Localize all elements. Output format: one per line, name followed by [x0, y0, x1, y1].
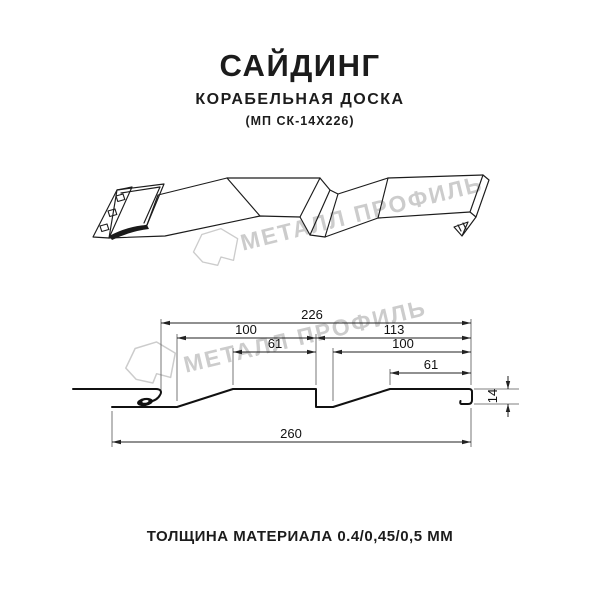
- profile-outline: [112, 389, 472, 407]
- dim-label-226: 226: [301, 307, 323, 322]
- material-thickness-note: ТОЛЩИНА МАТЕРИАЛА 0.4/0,45/0,5 ММ: [0, 528, 600, 545]
- page-subtitle: КОРАБЕЛЬНАЯ ДОСКА: [0, 91, 600, 109]
- page: САЙДИНГ КОРАБЕЛЬНАЯ ДОСКА (МП СК-14Х226)…: [0, 0, 600, 600]
- end-fold: [470, 175, 489, 217]
- dim-label-14: 14: [485, 389, 500, 403]
- header: САЙДИНГ КОРАБЕЛЬНАЯ ДОСКА (МП СК-14Х226): [0, 48, 600, 128]
- panel-3d-drawing: [55, 165, 495, 265]
- dim-label-61-left: 61: [268, 336, 282, 351]
- dim-label-100-right: 100: [392, 336, 414, 351]
- dim-label-61-right: 61: [424, 357, 438, 372]
- model-code: (МП СК-14Х226): [0, 114, 600, 128]
- page-title: САЙДИНГ: [0, 48, 600, 84]
- dim-label-113: 113: [384, 322, 405, 337]
- dim-label-260: 260: [280, 426, 302, 441]
- cross-section-drawing: 226 100 113 61 100 61 260 14: [60, 290, 530, 460]
- dim-label-100-left: 100: [235, 322, 257, 337]
